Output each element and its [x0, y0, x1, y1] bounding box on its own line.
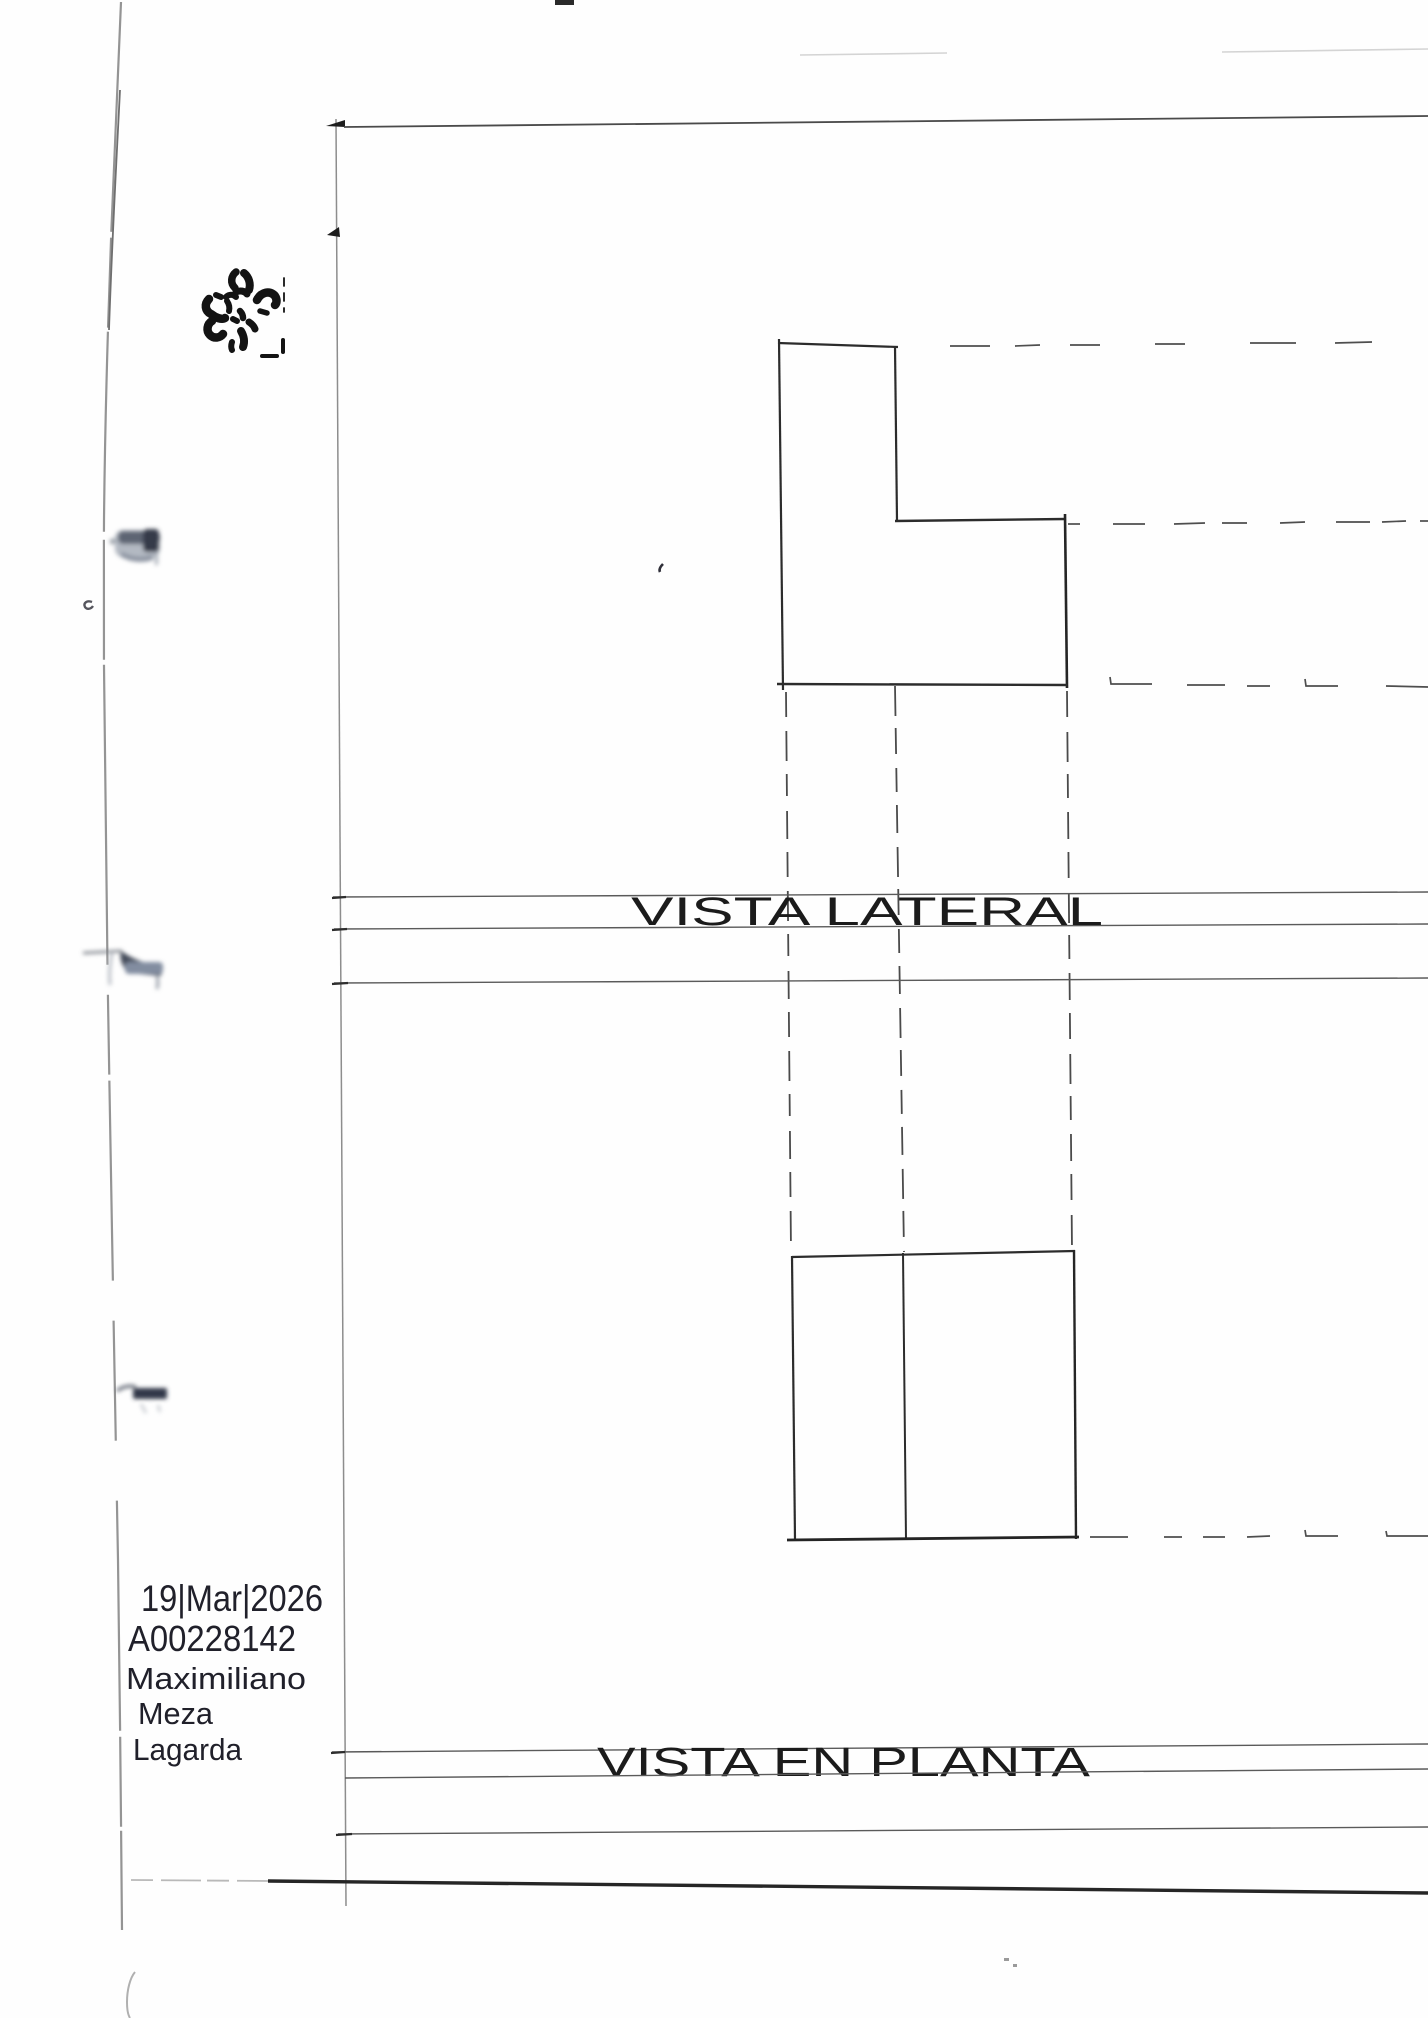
svg-text:Maximiliano: Maximiliano	[126, 1661, 306, 1696]
svg-text:Lagarda: Lagarda	[133, 1732, 243, 1767]
svg-text:A00228142: A00228142	[128, 1618, 296, 1659]
svg-text:VISTA EN PLANTA: VISTA EN PLANTA	[597, 1739, 1091, 1785]
svg-text:VISTA LATERAL: VISTA LATERAL	[631, 890, 1103, 934]
svg-text:Meza: Meza	[138, 1696, 214, 1731]
svg-text:19|Mar|2026: 19|Mar|2026	[141, 1578, 323, 1619]
